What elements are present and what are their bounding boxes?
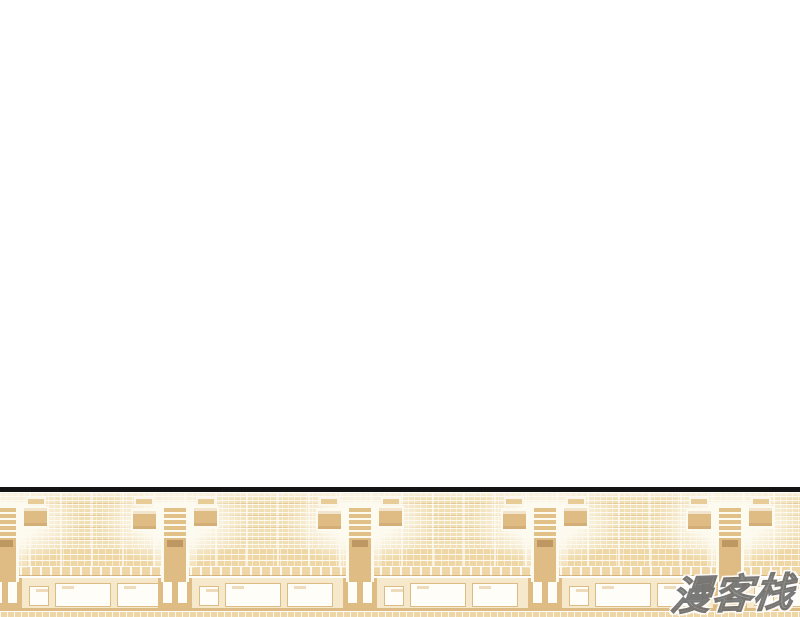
entrance-booth-left: [504, 497, 524, 506]
platform-right: [192, 506, 219, 528]
stairway: [0, 504, 18, 540]
vomitory-structure: [490, 494, 600, 611]
entrance-booth-right: [26, 497, 46, 506]
entrance-booth-right: [196, 497, 216, 506]
platform-right: [377, 506, 404, 528]
platform-left: [316, 509, 343, 531]
comic-page: 漫客栈: [0, 0, 800, 617]
tunnel-shadow: [537, 540, 553, 547]
stairway: [162, 504, 188, 540]
platform-left: [686, 509, 713, 531]
blank-white-area: [0, 0, 800, 487]
entrance-booth-right: [566, 497, 586, 506]
stadium-panel: 漫客栈: [0, 487, 800, 617]
entrance-booth-right: [381, 497, 401, 506]
stairway: [532, 504, 558, 540]
platform-right: [562, 506, 589, 528]
entrance-booth-left: [689, 497, 709, 506]
site-watermark: 漫客栈: [669, 573, 797, 617]
entrance-booth-left: [319, 497, 339, 506]
tunnel-shadow: [0, 540, 13, 547]
entrance-booth-right: [751, 497, 771, 506]
tunnel-shadow: [167, 540, 183, 547]
vomitory-structure: [305, 494, 415, 611]
tunnel-shadow: [352, 540, 368, 547]
entrance-booth-left: [134, 497, 154, 506]
platform-left: [501, 509, 528, 531]
stairway: [717, 504, 743, 540]
vomitory-structure: [0, 494, 60, 611]
vomitory-structure: [120, 494, 230, 611]
tunnel-shadow: [722, 540, 738, 547]
platform-left: [131, 509, 158, 531]
stairway: [347, 504, 373, 540]
platform-right: [22, 506, 49, 528]
platform-right: [747, 506, 774, 528]
